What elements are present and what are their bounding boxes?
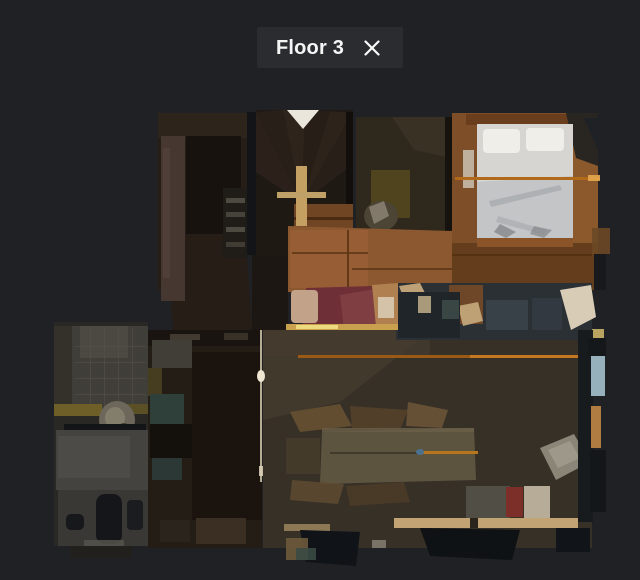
threshold-glow bbox=[296, 325, 338, 329]
den-door-frame bbox=[260, 330, 262, 482]
floorplan-svg bbox=[0, 0, 640, 580]
wardrobe-cushion-1 bbox=[486, 300, 528, 330]
den-door-dash bbox=[259, 466, 263, 476]
storage-shelf-slat-3 bbox=[226, 227, 245, 232]
closet-item-tan bbox=[418, 296, 431, 313]
den-top-speck-2 bbox=[224, 333, 248, 340]
bathroom-yellow-trim bbox=[54, 404, 102, 416]
chair-clutter-4 bbox=[290, 480, 344, 504]
scan-seam-glow bbox=[588, 175, 600, 181]
fragment-light bbox=[372, 540, 386, 548]
chair-clutter-5 bbox=[346, 482, 410, 506]
scan-fragment-2 bbox=[420, 528, 520, 560]
tile-line-h-4 bbox=[74, 394, 146, 395]
storage-shelf-slat-2 bbox=[226, 212, 245, 217]
counter-cloth bbox=[58, 436, 130, 478]
bed-frame-foot bbox=[477, 238, 573, 247]
close-button[interactable] bbox=[360, 36, 384, 60]
chair-clutter-2 bbox=[350, 406, 408, 430]
stair-right-wall bbox=[346, 112, 353, 204]
dining-table bbox=[320, 428, 476, 484]
den-shelf-gray bbox=[152, 340, 192, 368]
scan-fragment-3 bbox=[556, 528, 590, 552]
scan-seam-living-bright bbox=[470, 355, 584, 358]
wall-gap-left-of-stairs bbox=[247, 112, 256, 255]
right-tan-strip bbox=[591, 406, 601, 448]
tile-line-h-1 bbox=[74, 346, 146, 347]
floor-label-pill: Floor 3 bbox=[257, 27, 403, 68]
den-shelf-teal-2 bbox=[152, 458, 182, 480]
tile-line-h-3 bbox=[74, 378, 146, 379]
tile-line-v-4 bbox=[132, 328, 133, 412]
bathroom-dark-blob-2 bbox=[66, 514, 84, 530]
dining-table-edge bbox=[322, 428, 474, 432]
guest-bed-pillow bbox=[291, 290, 318, 323]
stair-handrail bbox=[277, 192, 326, 198]
den-bottom-clutter-2 bbox=[160, 520, 190, 542]
storage-room-top bbox=[158, 113, 247, 138]
storage-shelf-slat-4 bbox=[226, 242, 245, 247]
storage-plank-edge bbox=[163, 148, 170, 278]
window-light-blue bbox=[591, 356, 605, 396]
fragment-teal bbox=[296, 548, 316, 560]
seam-blue-dot bbox=[416, 449, 424, 455]
bedside-object bbox=[463, 150, 474, 188]
tile-line-v-2 bbox=[104, 328, 105, 412]
bathroom-left-wall bbox=[54, 326, 72, 414]
den-floor-dark bbox=[192, 352, 262, 520]
scan-seam-bedroom bbox=[455, 177, 600, 180]
bathroom-counter-shadow bbox=[64, 424, 146, 431]
bed-pillow-right bbox=[526, 128, 564, 151]
linen-stack bbox=[524, 486, 550, 519]
den-shelf-dark bbox=[150, 424, 192, 458]
tile-line-h-2 bbox=[74, 362, 146, 363]
right-dark-patch-2 bbox=[590, 450, 606, 512]
hallway-plank-line-1 bbox=[292, 252, 368, 254]
bottom-wall-bar bbox=[394, 518, 578, 528]
bottom-wall-gap bbox=[470, 518, 478, 528]
floor-view-stage: Floor 3 bbox=[0, 0, 640, 580]
side-table-paper bbox=[378, 297, 394, 318]
tile-line-v-3 bbox=[118, 328, 119, 412]
cabinet-gray bbox=[466, 486, 510, 520]
den-bottom-clutter-1 bbox=[196, 518, 246, 544]
storage-shelf-slat-1 bbox=[226, 198, 245, 203]
bedroom-headboard bbox=[466, 114, 582, 125]
bedroom-floor-shade bbox=[452, 243, 598, 290]
right-dark-patch-1 bbox=[588, 338, 606, 356]
floor-title: Floor 3 bbox=[276, 38, 344, 58]
bathroom-dark-blob-1 bbox=[96, 494, 122, 544]
bathroom-bottom-fade bbox=[70, 546, 132, 558]
bed-pillow-left bbox=[483, 129, 520, 153]
tile-line-v-1 bbox=[90, 328, 91, 412]
study-room-right-wall bbox=[445, 117, 453, 248]
bottom-left-ledge bbox=[284, 524, 330, 531]
floorplan-canvas[interactable] bbox=[0, 0, 640, 580]
red-bag bbox=[506, 487, 523, 517]
bedroom-plank-line bbox=[452, 254, 592, 256]
lower-landing-dark bbox=[252, 255, 288, 330]
hallway-plank-line-2 bbox=[352, 268, 452, 270]
bathroom-dark-blob-3 bbox=[127, 500, 143, 530]
den-top-speck-1 bbox=[170, 334, 200, 340]
hallway-floor-light bbox=[290, 230, 368, 288]
floor-clutter-left bbox=[286, 438, 320, 474]
right-fragment-dark bbox=[594, 254, 606, 290]
scan-seam-table bbox=[420, 451, 478, 454]
hallway-plank-gap bbox=[347, 230, 349, 292]
den-shelf-teal-1 bbox=[150, 394, 184, 424]
right-fragment-tan bbox=[592, 228, 610, 254]
wardrobe-cushion-2 bbox=[532, 298, 562, 330]
den-shelf-yellow bbox=[148, 368, 162, 396]
den-door-knob bbox=[257, 370, 265, 382]
closet-item-teal bbox=[442, 300, 459, 319]
close-icon bbox=[363, 39, 381, 57]
